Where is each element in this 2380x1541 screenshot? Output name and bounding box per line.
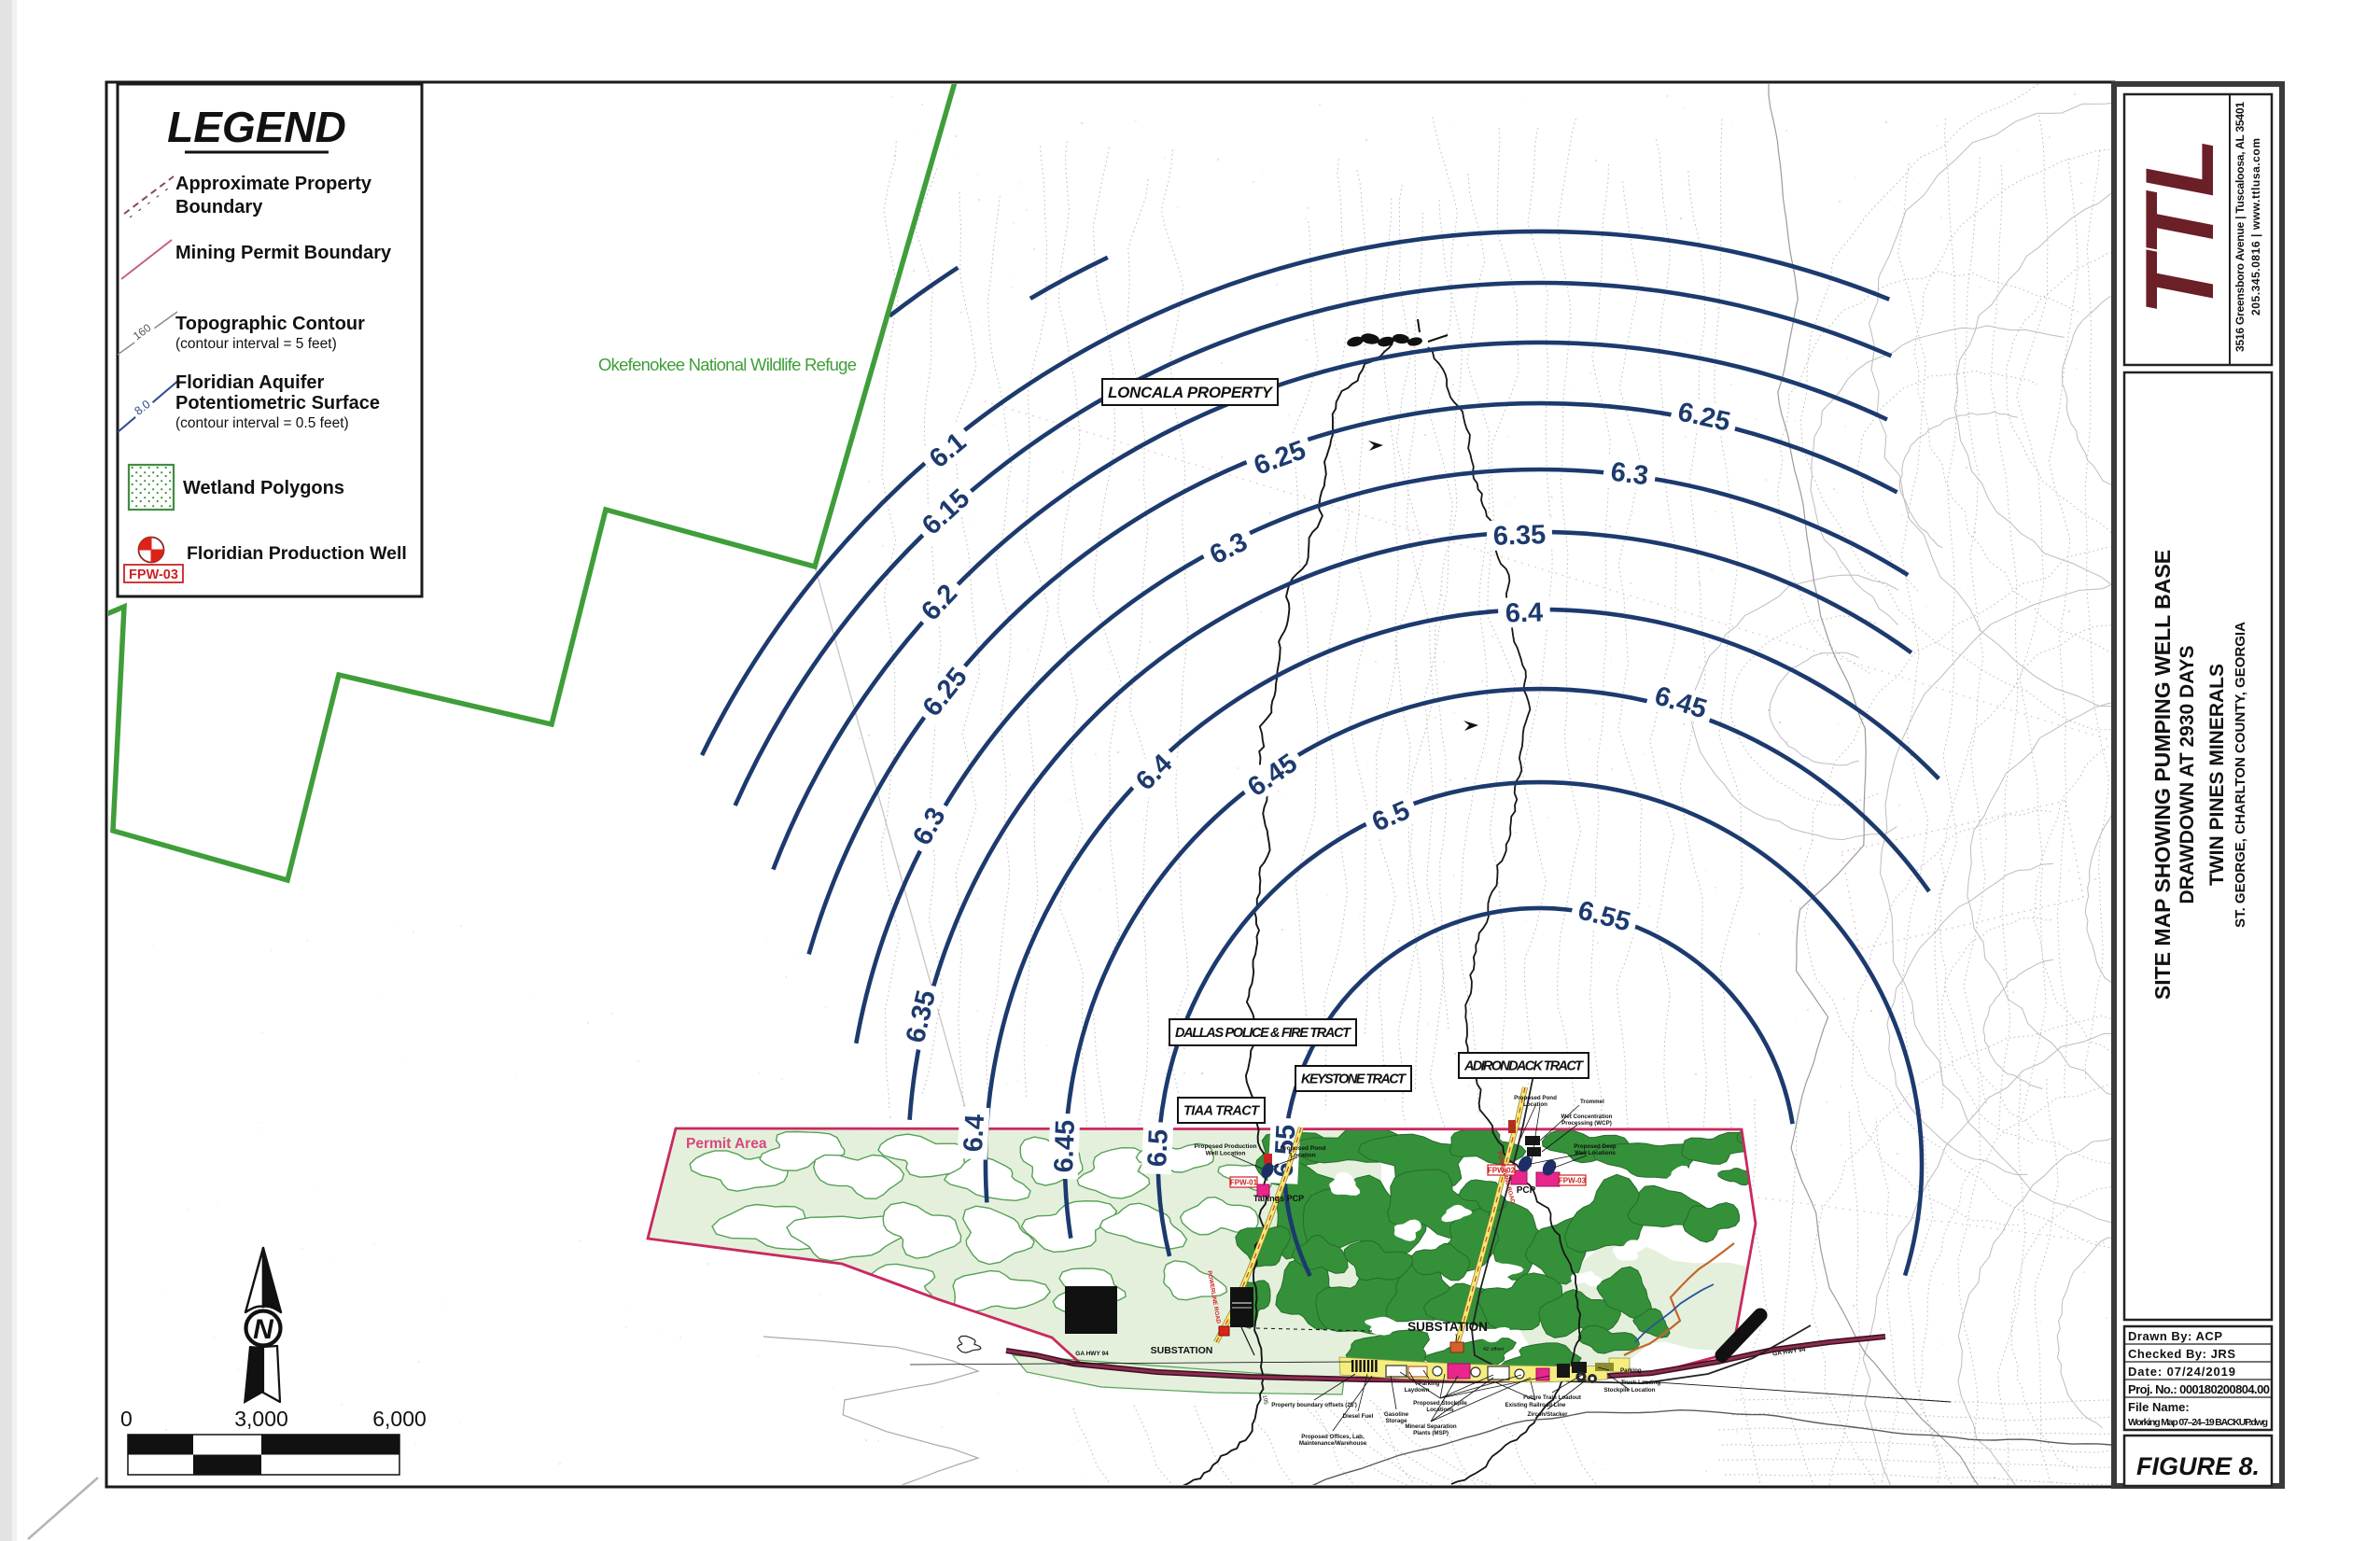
svg-text:6.35: 6.35 (1492, 520, 1546, 552)
svg-text:Floridian Production Well: Floridian Production Well (187, 543, 407, 564)
svg-text:Tailings PCP: Tailings PCP (1253, 1194, 1304, 1203)
svg-text:3,000: 3,000 (234, 1407, 288, 1431)
svg-text:6.3: 6.3 (1609, 457, 1650, 492)
svg-text:File Name:: File Name: (2128, 1400, 2190, 1414)
svg-text:Proposed DeepWell Locations: Proposed DeepWell Locations (1574, 1143, 1617, 1156)
svg-text:Future Train Loadout: Future Train Loadout (1523, 1394, 1581, 1401)
svg-text:TIAA TRACT: TIAA TRACT (1183, 1104, 1260, 1119)
svg-text:Property boundary offsets (25': Property boundary offsets (25') (1271, 1402, 1357, 1408)
svg-text:Okefenokee National Wildlife R: Okefenokee National Wildlife Refuge (598, 355, 857, 374)
svg-text:Approximate Property: Approximate Property (175, 174, 372, 194)
svg-text:FIGURE 8.: FIGURE 8. (2136, 1452, 2260, 1480)
svg-text:LONCALA PROPERTY: LONCALA PROPERTY (1108, 384, 1274, 401)
svg-text:Proj. No.: 000180200804.00: Proj. No.: 000180200804.00 (2128, 1382, 2270, 1396)
svg-text:Floridian Aquifer: Floridian Aquifer (175, 372, 324, 393)
svg-text:205.345.0816 | www.ttlusa.com: 205.345.0816 | www.ttlusa.com (2249, 138, 2262, 315)
svg-text:Checked By: JRS: Checked By: JRS (2128, 1347, 2235, 1361)
svg-text:6.45: 6.45 (1049, 1119, 1081, 1173)
svg-text:TWIN PINES MINERALS: TWIN PINES MINERALS (2206, 664, 2228, 886)
svg-text:TTL: TTL (2126, 138, 2234, 316)
svg-text:GA HWY 94: GA HWY 94 (1075, 1351, 1109, 1357)
svg-text:SITE MAP SHOWING PUMPING WELL: SITE MAP SHOWING PUMPING WELL BASE (2150, 550, 2175, 1000)
svg-text:GasolineStorage: GasolineStorage (1384, 1411, 1409, 1424)
svg-text:3516 Greensboro Avenue | Tusca: 3516 Greensboro Avenue | Tuscaloosa, AL … (2233, 102, 2247, 352)
svg-text:FPW-03: FPW-03 (129, 567, 178, 582)
svg-text:KEYSTONE TRACT: KEYSTONE TRACT (1301, 1072, 1407, 1087)
svg-text:0: 0 (120, 1407, 133, 1431)
svg-text:42 offset: 42 offset (1483, 1347, 1505, 1352)
svg-text:Wetland Polygons: Wetland Polygons (183, 478, 344, 498)
svg-text:6.5: 6.5 (1142, 1128, 1174, 1168)
svg-text:Potentiometric Surface: Potentiometric Surface (175, 393, 380, 413)
svg-text:Date: 07/24/2019: Date: 07/24/2019 (2128, 1365, 2235, 1379)
svg-text:FPW-03: FPW-03 (1559, 1177, 1587, 1185)
svg-text:Laydown: Laydown (1405, 1387, 1430, 1394)
svg-text:Proposed Offices, Lab,Maintena: Proposed Offices, Lab,Maintenance/Wareho… (1299, 1434, 1367, 1447)
svg-text:Trommel: Trommel (1580, 1099, 1604, 1105)
svg-text:SUBSTATION: SUBSTATION (1151, 1345, 1213, 1356)
svg-text:DRAWDOWN AT 2930 DAYS: DRAWDOWN AT 2930 DAYS (2177, 646, 2198, 904)
svg-text:Drawn By: ACP: Drawn By: ACP (2128, 1329, 2222, 1343)
svg-text:6.4: 6.4 (959, 1114, 990, 1153)
svg-text:6,000: 6,000 (372, 1407, 427, 1431)
svg-text:Stockpile Location: Stockpile Location (1603, 1387, 1655, 1394)
svg-text:SUBSTATION: SUBSTATION (1407, 1320, 1488, 1334)
svg-text:Working Map 07–24–19 BACKUP: Working Map 07–24–19 BACKUP.dwg (2128, 1417, 2268, 1428)
svg-text:Topographic Contour: Topographic Contour (175, 314, 365, 334)
svg-text:ADIRONDACK TRACT: ADIRONDACK TRACT (1463, 1059, 1584, 1074)
svg-text:Parking: Parking (1620, 1367, 1642, 1374)
svg-text:PCP: PCP (1517, 1185, 1536, 1196)
svg-text:(contour interval = 0.5 feet): (contour interval = 0.5 feet) (175, 415, 349, 431)
svg-text:FPW-01: FPW-01 (1230, 1179, 1258, 1187)
svg-text:6.4: 6.4 (1505, 597, 1543, 628)
svg-text:Zircon/Stacker: Zircon/Stacker (1528, 1411, 1569, 1418)
svg-text:Boundary: Boundary (175, 197, 263, 217)
svg-text:Existing Railroad Line: Existing Railroad Line (1505, 1402, 1567, 1408)
svg-text:Truck Loading: Truck Loading (1621, 1380, 1661, 1386)
svg-text:Diesel Fuel: Diesel Fuel (1343, 1413, 1374, 1420)
svg-text:Permit Area: Permit Area (686, 1136, 767, 1152)
svg-text:Wet ConcentrationProcessing (W: Wet ConcentrationProcessing (WCP) (1561, 1114, 1613, 1127)
svg-text:(contour interval = 5 feet): (contour interval = 5 feet) (175, 336, 337, 352)
svg-text:ST. GEORGE, CHARLTON COUNTY, G: ST. GEORGE, CHARLTON COUNTY, GEORGIA (2233, 622, 2248, 928)
svg-text:N: N (253, 1314, 274, 1345)
svg-text:DALLAS POLICE & FIRE TRACT: DALLAS POLICE & FIRE TRACT (1175, 1026, 1351, 1041)
svg-text:LEGEND: LEGEND (167, 103, 346, 151)
svg-text:Mining Permit Boundary: Mining Permit Boundary (175, 243, 392, 263)
